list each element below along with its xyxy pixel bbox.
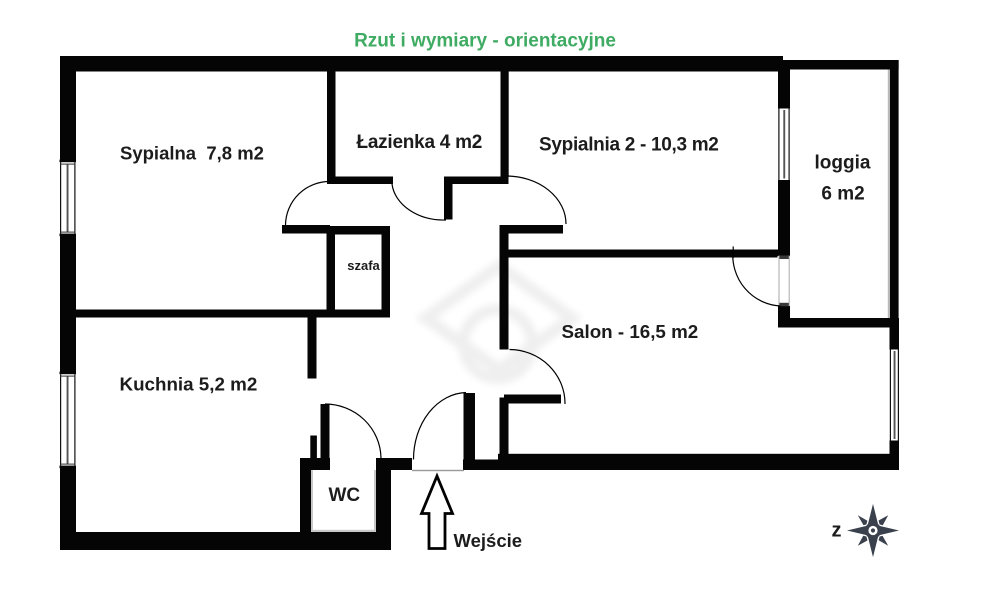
svg-text:z: z: [832, 520, 842, 542]
svg-text:Łazienka 4 m2: Łazienka 4 m2: [357, 132, 483, 153]
svg-text:Sypialnia 2 - 10,3 m2: Sypialnia 2 - 10,3 m2: [539, 135, 719, 156]
svg-text:Sypialna 7,8 m2: Sypialna 7,8 m2: [120, 143, 264, 164]
svg-text:loggia: loggia: [815, 153, 871, 174]
svg-text:Rzut i wymiary - orientacyjne: Rzut i wymiary - orientacyjne: [354, 31, 616, 52]
svg-text:Wejście: Wejście: [454, 530, 523, 551]
svg-text:szafa: szafa: [347, 258, 380, 273]
svg-text:Kuchnia 5,2 m2: Kuchnia 5,2 m2: [120, 374, 258, 395]
svg-text:6 m2: 6 m2: [821, 184, 864, 205]
svg-text:Salon - 16,5 m2: Salon - 16,5 m2: [562, 321, 699, 342]
svg-text:WC: WC: [329, 485, 361, 506]
